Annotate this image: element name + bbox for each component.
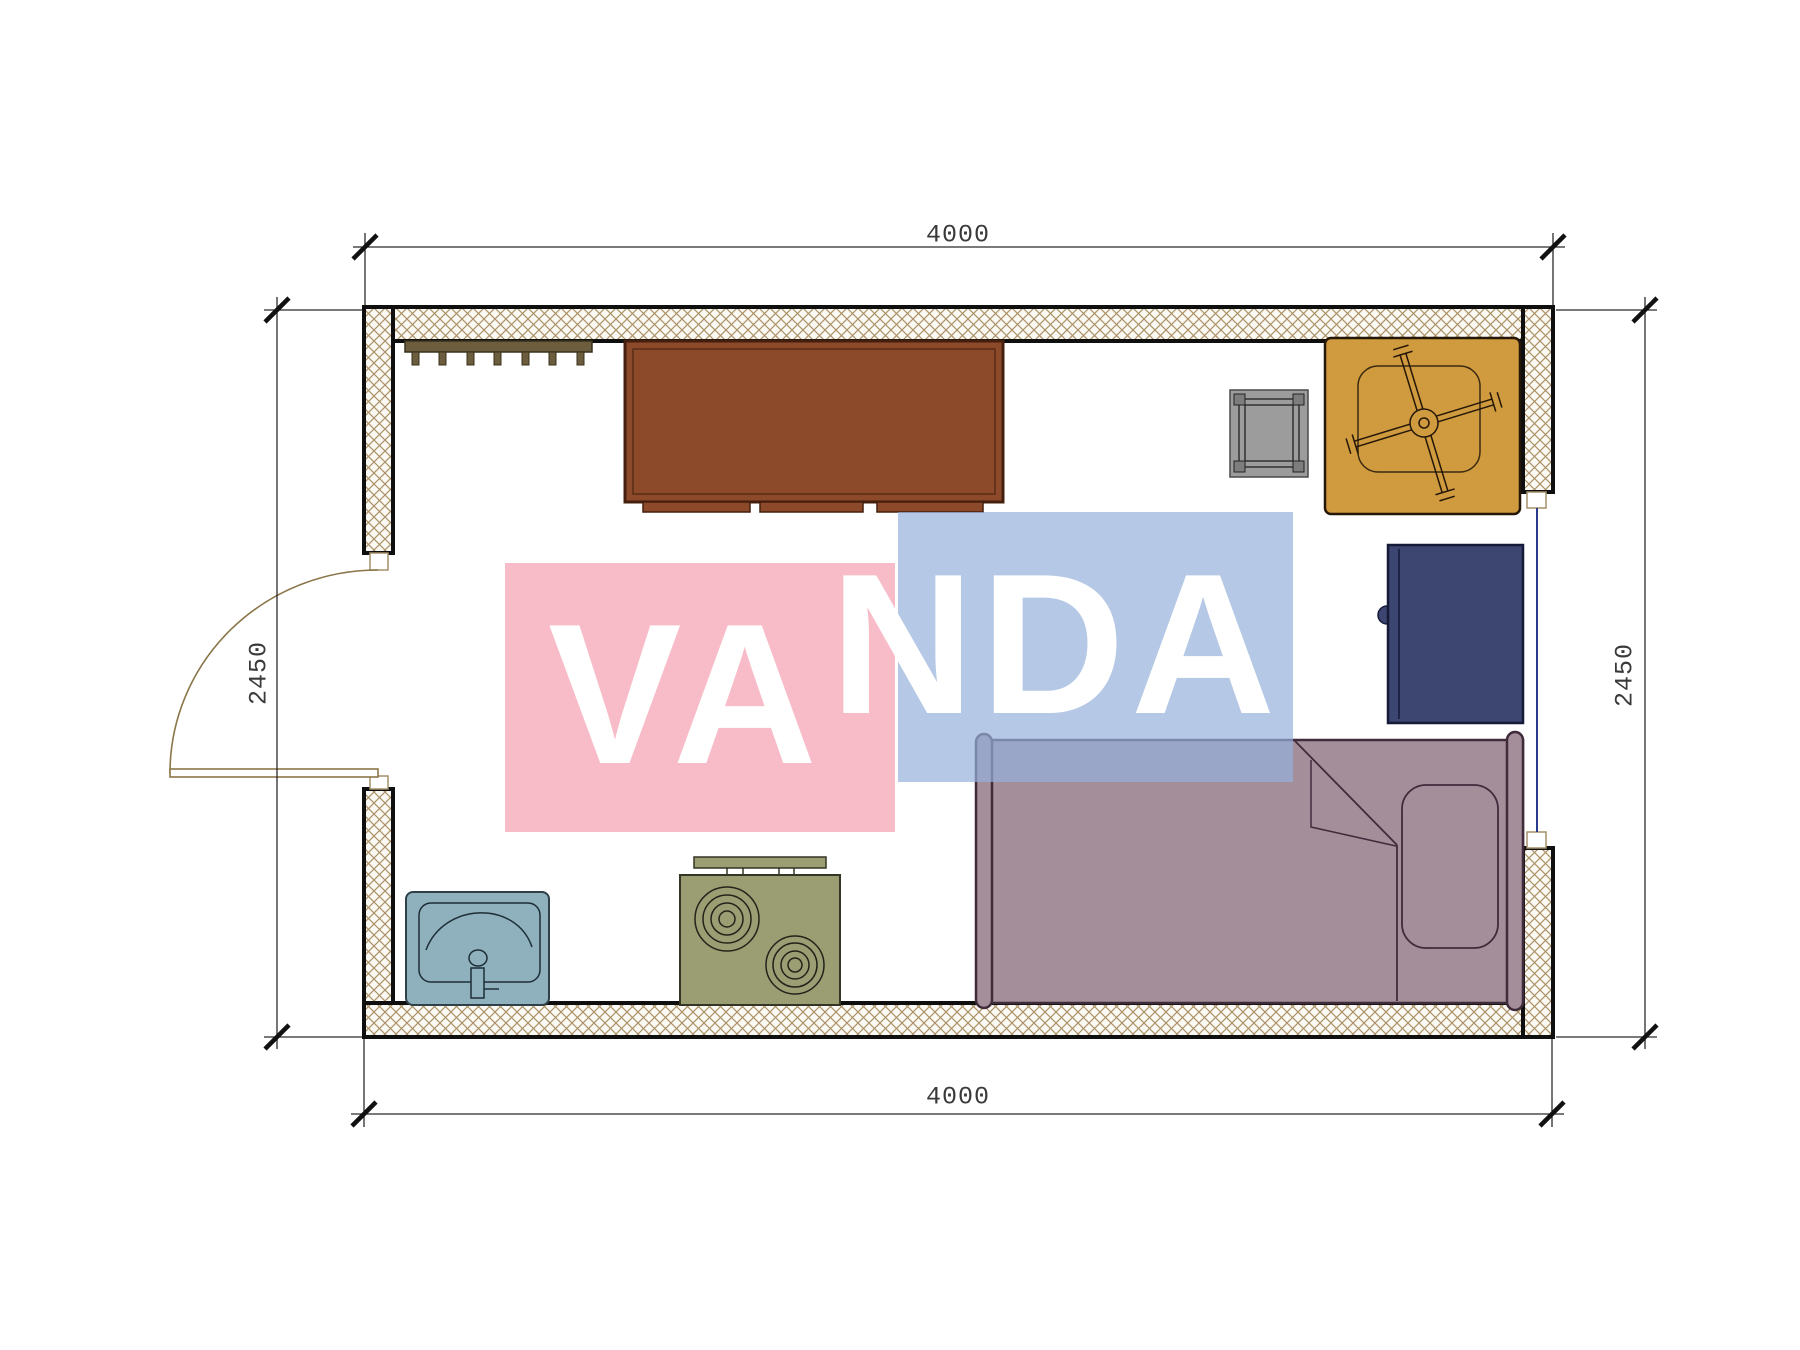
wall-right-upper bbox=[1523, 307, 1553, 492]
wall-right-lower bbox=[1523, 848, 1553, 1037]
window-jamb-bottom bbox=[1527, 832, 1546, 848]
wall-top bbox=[365, 307, 1553, 341]
wardrobe-icon bbox=[1378, 545, 1523, 723]
wall-bottom bbox=[364, 1003, 1553, 1037]
desk-icon bbox=[625, 341, 1003, 512]
dim-label-right: 2450 bbox=[1611, 643, 1640, 707]
dim-label-left: 2450 bbox=[245, 641, 274, 705]
wall-left-upper bbox=[364, 307, 393, 553]
door-leaf-icon bbox=[170, 769, 378, 777]
door-jamb-bottom bbox=[370, 776, 388, 789]
window bbox=[1527, 492, 1546, 848]
bed-headboard bbox=[1507, 732, 1523, 1010]
window-jamb-top bbox=[1527, 492, 1546, 508]
bed-pillow bbox=[1402, 785, 1498, 948]
sink-icon bbox=[406, 892, 549, 1005]
floor-plan-canvas: 4000 4000 2450 2450 VA NDA bbox=[0, 0, 1800, 1350]
wall-left-lower bbox=[364, 789, 393, 1037]
door-swing-arc bbox=[170, 570, 378, 773]
door-jamb-top bbox=[370, 553, 388, 570]
watermark-text-nda: NDA bbox=[830, 545, 1281, 745]
stool-icon bbox=[1230, 390, 1308, 477]
dim-label-top: 4000 bbox=[926, 221, 990, 250]
stove-icon bbox=[680, 857, 840, 1005]
door bbox=[170, 553, 388, 789]
armchair-icon bbox=[1325, 324, 1523, 521]
coat-rack-icon bbox=[405, 341, 592, 365]
watermark-text-va: VA bbox=[548, 595, 823, 795]
dim-label-bottom: 4000 bbox=[926, 1083, 990, 1112]
